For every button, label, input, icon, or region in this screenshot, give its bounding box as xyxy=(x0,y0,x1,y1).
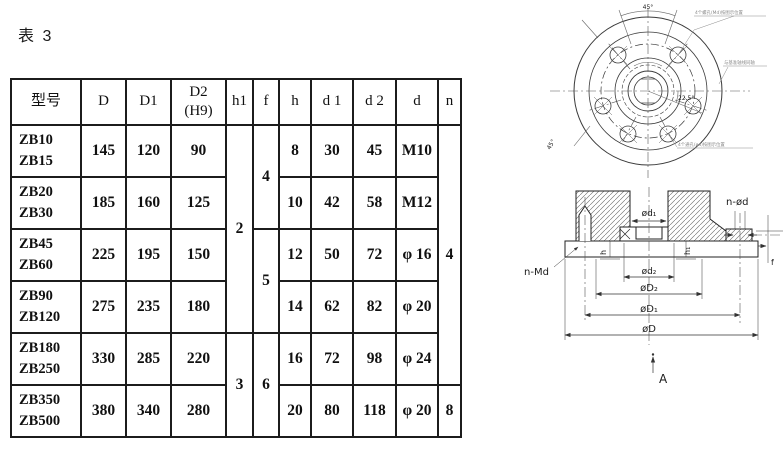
col-header-d2: d 2 xyxy=(353,79,396,125)
cell-f-merged: 5 xyxy=(253,229,279,333)
angle-top-label: 45° xyxy=(643,4,654,11)
cell-h: 10 xyxy=(279,177,311,229)
cell-d: φ 16 xyxy=(396,229,438,281)
cell-d: φ 24 xyxy=(396,333,438,385)
dim-D1-label: øD₁ xyxy=(640,304,658,315)
cell-d2: 58 xyxy=(353,177,396,229)
cell-d: φ 20 xyxy=(396,385,438,437)
cell-d: φ 20 xyxy=(396,281,438,333)
col-header-d: d xyxy=(396,79,438,125)
dim-d1-label: ød₁ xyxy=(642,209,657,219)
cell-n-merged: 4 xyxy=(438,125,461,385)
label-h: h xyxy=(599,250,608,255)
note-right-annotation: 与基准轴线同轴 xyxy=(724,59,755,66)
cell-D: 275 xyxy=(81,281,126,333)
cell-h: 16 xyxy=(279,333,311,385)
cell-D: 145 xyxy=(81,125,126,177)
cell-h: 8 xyxy=(279,125,311,177)
cell-h: 20 xyxy=(279,385,311,437)
cell-D2: 220 xyxy=(171,333,226,385)
cell-model: ZB10 ZB15 xyxy=(11,125,81,177)
cell-d2: 82 xyxy=(353,281,396,333)
cell-h1-merged: 2 xyxy=(226,125,253,333)
table-row: ZB10 ZB15 145 120 90 2 4 8 30 45 M10 4 xyxy=(11,125,461,177)
cell-d1: 50 xyxy=(311,229,353,281)
front-view-angle-dims xyxy=(574,10,702,146)
cell-D: 330 xyxy=(81,333,126,385)
col-header-h1: h1 xyxy=(226,79,253,125)
col-header-model: 型号 xyxy=(11,79,81,125)
cell-n-merged: 8 xyxy=(438,385,461,437)
cell-model: ZB90 ZB120 xyxy=(11,281,81,333)
cell-h: 14 xyxy=(279,281,311,333)
cell-D2: 125 xyxy=(171,177,226,229)
col-header-f: f xyxy=(253,79,279,125)
cell-D1: 340 xyxy=(126,385,171,437)
dim-D2-label: øD₂ xyxy=(640,283,658,294)
table-row: ZB180 ZB250 330 285 220 3 6 16 72 98 φ 2… xyxy=(11,333,461,385)
cell-model: ZB180 ZB250 xyxy=(11,333,81,385)
cell-f-merged: 4 xyxy=(253,125,279,229)
cell-d1: 80 xyxy=(311,385,353,437)
angle-left-label: 45° xyxy=(546,138,557,151)
col-header-n: n xyxy=(438,79,461,125)
label-n-od: n-ød xyxy=(726,197,748,208)
datum-a-label: A xyxy=(659,372,668,386)
cell-d2: 45 xyxy=(353,125,396,177)
cell-D: 380 xyxy=(81,385,126,437)
cell-D2: 150 xyxy=(171,229,226,281)
page-title: 表 3 xyxy=(18,22,53,46)
spec-table: 型号 D D1 D2 (H9) h1 f h d 1 d 2 d n ZB10 … xyxy=(10,78,462,438)
cell-model: ZB20 ZB30 xyxy=(11,177,81,229)
cell-d1: 72 xyxy=(311,333,353,385)
cell-D1: 285 xyxy=(126,333,171,385)
cell-D2: 180 xyxy=(171,281,226,333)
label-f: f xyxy=(771,258,774,267)
col-header-D2: D2 (H9) xyxy=(171,79,226,125)
dim-D-label: øD xyxy=(642,324,656,335)
flange-section-view-drawing: ød₁ ød₂ øD₂ øD₁ øD n-Md n-ød h h₁ f A xyxy=(520,185,784,389)
cell-d: M10 xyxy=(396,125,438,177)
note-top-annotation: 4个螺孔(Md)按图示位置 xyxy=(695,9,744,16)
front-view-leader-lines xyxy=(668,16,767,148)
col-header-d1: d 1 xyxy=(311,79,353,125)
cell-D1: 195 xyxy=(126,229,171,281)
cell-d2: 98 xyxy=(353,333,396,385)
col-header-h: h xyxy=(279,79,311,125)
label-h1: h₁ xyxy=(683,247,692,255)
cell-d: M12 xyxy=(396,177,438,229)
cell-d1: 30 xyxy=(311,125,353,177)
cell-d1: 62 xyxy=(311,281,353,333)
col-header-D: D xyxy=(81,79,126,125)
col-header-D1: D1 xyxy=(126,79,171,125)
cell-h1-merged: 3 xyxy=(226,333,253,437)
cell-D1: 120 xyxy=(126,125,171,177)
cell-d2: 118 xyxy=(353,385,396,437)
flange-front-view-drawing: 45° 22.5° 45° 4个螺孔(Md)按图示位置 与基准轴线同轴 4个通孔… xyxy=(538,0,770,184)
note-bottom-annotation: 4个通孔(ød)按图示位置 xyxy=(678,141,725,148)
cell-f-merged: 6 xyxy=(253,333,279,437)
cell-d1: 42 xyxy=(311,177,353,229)
cell-D2: 280 xyxy=(171,385,226,437)
cell-D1: 160 xyxy=(126,177,171,229)
angle-right-label: 22.5° xyxy=(678,95,694,102)
cell-D2: 90 xyxy=(171,125,226,177)
cell-h: 12 xyxy=(279,229,311,281)
cell-d2: 72 xyxy=(353,229,396,281)
dim-d2-label: ød₂ xyxy=(642,267,657,277)
cell-D: 225 xyxy=(81,229,126,281)
front-view-centerlines xyxy=(550,8,750,178)
technical-sheet: 表 3 型号 D D1 D2 (H9) h1 f h d 1 d 2 d n Z… xyxy=(0,0,784,459)
cell-model: ZB350 ZB500 xyxy=(11,385,81,437)
cell-D1: 235 xyxy=(126,281,171,333)
cell-model: ZB45 ZB60 xyxy=(11,229,81,281)
cell-D: 185 xyxy=(81,177,126,229)
label-n-md: n-Md xyxy=(524,267,549,278)
table-header-row: 型号 D D1 D2 (H9) h1 f h d 1 d 2 d n xyxy=(11,79,461,125)
